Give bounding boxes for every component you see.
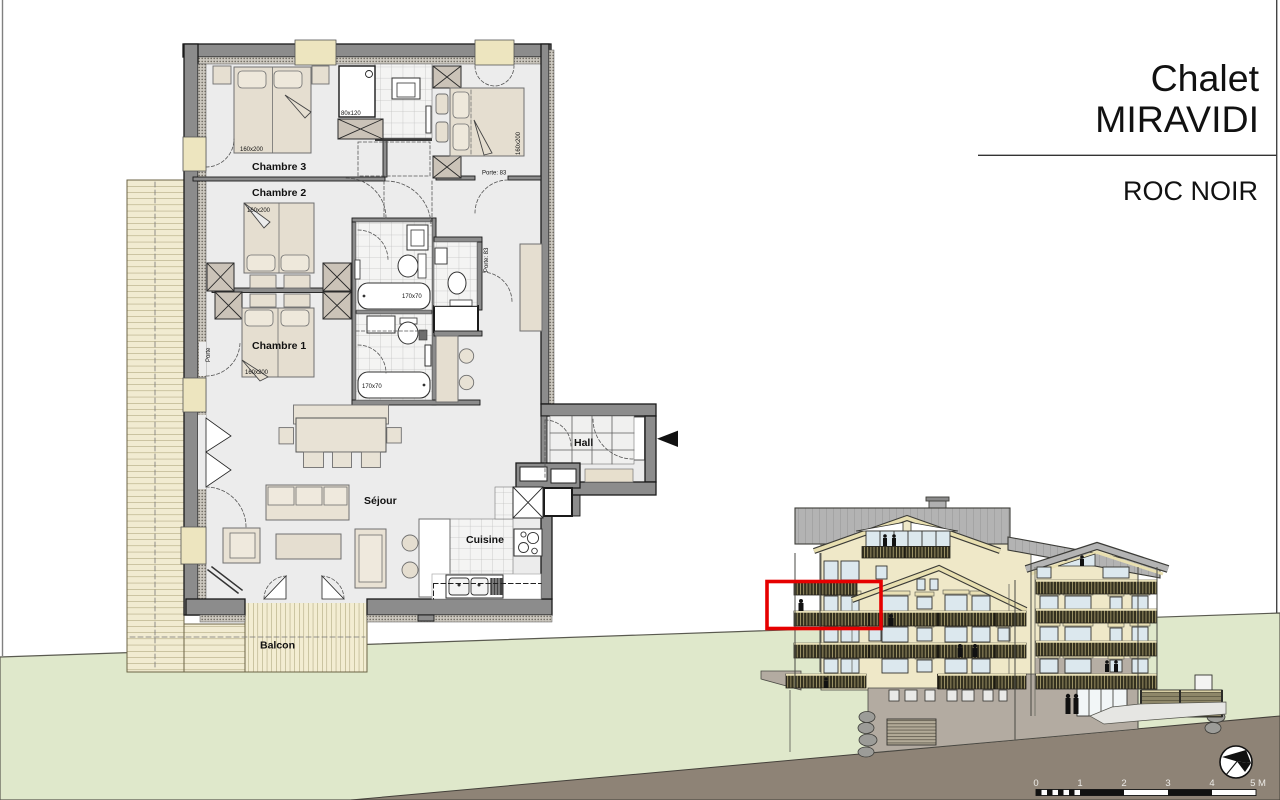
svg-text:Chambre 2: Chambre 2	[252, 187, 306, 199]
svg-text:Balcon: Balcon	[260, 640, 295, 652]
svg-text:160x200: 160x200	[245, 370, 269, 376]
svg-text:Chambre 3: Chambre 3	[252, 161, 306, 173]
svg-text:MIRAVIDI: MIRAVIDI	[1095, 98, 1259, 140]
svg-text:ROC NOIR: ROC NOIR	[1123, 176, 1258, 206]
svg-text:80x120: 80x120	[341, 111, 361, 117]
svg-text:Porte: 83: Porte: 83	[484, 247, 490, 272]
svg-text:5 M: 5 M	[1250, 778, 1266, 789]
svg-text:Hall: Hall	[574, 437, 593, 449]
svg-text:160x200: 160x200	[247, 208, 271, 214]
svg-text:4: 4	[1209, 778, 1214, 789]
svg-text:Chalet: Chalet	[1151, 57, 1260, 99]
svg-text:Cuisine: Cuisine	[466, 534, 504, 546]
svg-text:Porte: Porte	[206, 347, 212, 362]
svg-text:160x200: 160x200	[240, 147, 264, 153]
svg-text:160x200: 160x200	[516, 131, 522, 155]
svg-text:170x70: 170x70	[402, 294, 422, 300]
svg-text:1: 1	[1077, 778, 1082, 789]
svg-text:0: 0	[1033, 778, 1038, 789]
svg-text:170x70: 170x70	[362, 384, 382, 390]
svg-text:3: 3	[1165, 778, 1170, 789]
svg-text:Porte: 83: Porte: 83	[482, 171, 507, 177]
svg-text:Séjour: Séjour	[364, 495, 397, 507]
svg-text:Chambre 1: Chambre 1	[252, 340, 306, 352]
svg-text:2: 2	[1121, 778, 1126, 789]
